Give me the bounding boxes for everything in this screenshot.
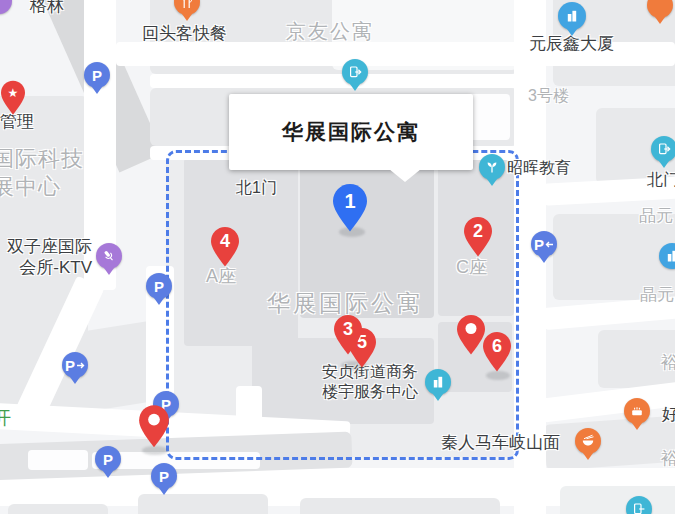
fork-knife-glyph [180,0,194,9]
area-label-3haolou: 3号楼 [528,86,569,107]
marker-number: 3 [332,319,364,340]
parking-letter: P [103,452,113,467]
parking-letter: P [92,68,102,83]
building-block [138,494,268,514]
place-callout[interactable]: 华展国际公寓 [229,94,473,170]
area-label-pinyuan: 品元 [639,204,673,227]
bakery-icon[interactable] [624,398,650,424]
education-icon[interactable] [479,154,505,180]
marker-6[interactable]: 6 [481,331,513,373]
building-block [544,415,675,471]
marker-number: 2 [462,221,494,242]
exit-door-icon[interactable] [342,59,368,85]
poi-label-line: 会所-KTV [0,257,92,278]
parking-icon[interactable]: P [146,273,172,299]
poi-label-line: 楼宇服务中心 [305,382,435,402]
service-center-icon[interactable] [425,369,451,395]
building-glyph [665,249,675,263]
building-block [560,486,675,514]
poi-label-qinren: 秦人马车岐山面 [441,431,560,454]
marker-dot[interactable] [137,404,171,449]
poi-label-shuangzizuo: 双子座国际 会所-KTV [0,236,92,278]
bowl-chopsticks-glyph [581,434,595,448]
noodle-shop-icon[interactable] [575,428,601,454]
poi-label-bei1men: 北1门 [236,178,277,199]
microphone-glyph [102,249,116,263]
area-label-yu-2: 裕 [661,447,675,470]
parking-entrance-right-icon[interactable]: P [62,352,88,378]
map-canvas[interactable]: 京友公寓 3号楼 国际科技 展中心 A座 C座 华展国际公寓 品元 晶元 裕 裕… [0,0,675,514]
star-glyph: ★ [0,86,27,100]
poi-label-beimen: 北门 [647,170,675,191]
marker-2[interactable]: 2 [462,216,494,258]
marker-number: 6 [481,336,513,357]
area-label-yu-1: 裕 [661,351,675,374]
road-label-kai: 开 [0,406,11,430]
area-label-zhanzhongxin: 展中心 [0,172,61,202]
parking-entrance-left-icon[interactable]: P [531,231,557,257]
marker-3[interactable]: 3 [332,314,364,356]
cake-glyph [630,404,644,418]
parking-icon[interactable]: P [151,463,177,489]
parking-letter: P [154,279,164,294]
building-block [28,450,88,470]
parking-letter: P [65,358,75,373]
area-label-jingyuan: 晶元 [640,283,674,306]
exit-door-icon[interactable] [651,136,675,162]
arrow-right-glyph [76,361,85,370]
road [150,74,518,88]
building-block [300,498,500,514]
office-building-icon[interactable] [558,2,586,30]
red-dot-pin-glyph [137,404,171,449]
building-block [8,504,108,514]
door-arrow-glyph [632,502,646,514]
area-label-czuo: C座 [456,255,487,279]
parking-letter: P [534,237,544,252]
arrow-left-glyph [545,240,554,249]
marker-1-main[interactable]: 1 [331,183,369,233]
sprout-glyph [485,160,499,174]
building-glyph [565,9,579,23]
parking-letter: P [159,469,169,484]
poi-label-hao: 好 [662,403,675,426]
poi-label-line: 双子座国际 [0,236,92,257]
building-glyph [431,375,445,389]
marker-4[interactable]: 4 [209,226,241,268]
door-arrow-glyph [657,142,671,156]
parking-icon[interactable]: P [95,446,121,472]
marker-number: 1 [331,190,369,213]
poi-pin-partial-icon[interactable] [0,0,12,14]
place-title: 华展国际公寓 [229,94,473,170]
area-label-guojikeji: 国际科技 [0,144,84,174]
ktv-mic-icon[interactable] [96,243,122,269]
area-label-jingyou: 京友公寓 [286,18,374,45]
poi-label-zhaohui: 昭晖教育 [507,158,571,179]
poi-label-gelin: 格林 [30,0,64,17]
parking-icon[interactable]: P [84,62,110,88]
marker-number: 4 [209,231,241,252]
management-star-pin[interactable]: ★ [0,80,27,116]
door-arrow-glyph [348,65,362,79]
